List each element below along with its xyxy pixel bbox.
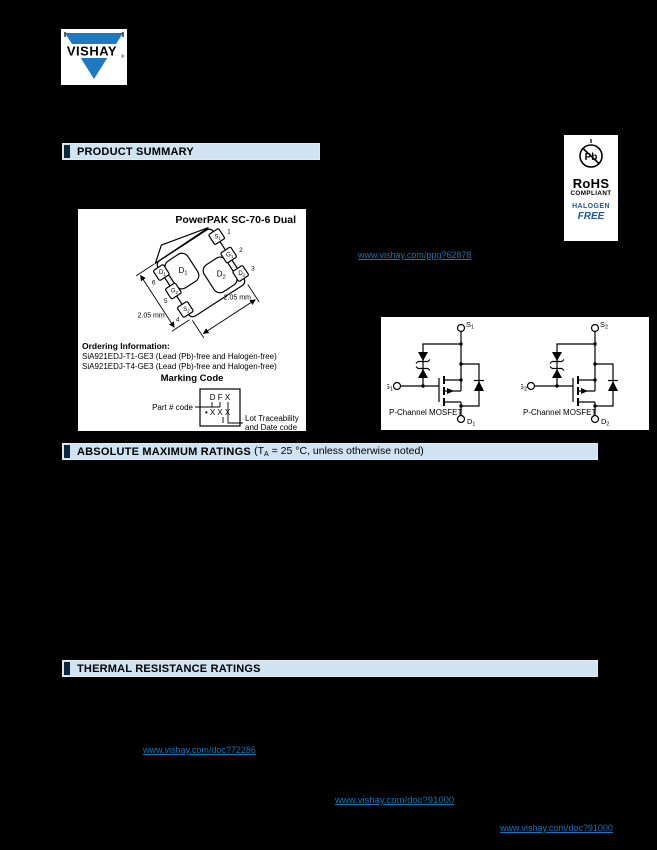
halogen-free-label: FREE [564,211,618,222]
vishay-logo: VISHAY ® [61,29,127,85]
soldering-guidelines-link[interactable]: www.vishay.com/doc?72286 [143,745,256,755]
circuit-caption: P-Channel MOSFET [523,408,596,417]
abs-max-condition: (TA = 25 °C, unless otherwise noted) [254,445,424,458]
date-code-label: and Date code [245,423,298,431]
package-diagram: D1 D2 S1 G1 D2 D1 G2 S2 1 2 3 6 5 4 2.05… [79,223,305,341]
absolute-max-ratings-header: ABSOLUTE MAXIMUM RATINGS (TA = 25 °C, un… [62,443,598,460]
pin-label-s2: S2 [183,307,190,313]
dimension-right: 2.05 mm [224,295,251,302]
halogen-label: HALOGEN [564,203,618,211]
circuit-symbols [552,342,618,407]
lot-traceability-label: Lot Traceability [245,414,299,423]
pin-number-5: 5 [164,298,168,305]
thermal-resistance-header: THERMAL RESISTANCE RATINGS [62,660,598,677]
package-figure: PowerPAK SC-70-6 Dual [77,208,307,432]
pin-label-d2: D2 [238,271,245,277]
ordering-information: Ordering Information: SiA921EDJ-T1-GE3 (… [82,341,277,373]
product-summary-header: PRODUCT SUMMARY [62,143,320,160]
terminal-label-s2: S2 [600,320,608,331]
pin-number-4: 4 [176,317,180,324]
schematic-figure: S1 G1 D1 P-Channel MOSFET [380,316,650,431]
part-code-label: Part # code [152,403,193,412]
pin-number-2: 2 [239,247,243,254]
terminal-label-s1: S1 [466,320,474,331]
marking-code-diagram: D F X •X X X Part # code Lot Traceabilit… [78,385,304,431]
pb-label: Pb [585,152,598,163]
datasheet-page: VISHAY ® PRODUCT SUMMARY Pb RoHS COMPLIA… [0,0,657,850]
pin-label-s1: S1 [215,234,222,240]
thermal-resistance-title: THERMAL RESISTANCE RATINGS [77,663,261,675]
marking-code-heading: Marking Code [78,373,306,384]
ordering-line: SiA921EDJ-T4-GE3 (Lead (Pb)-free and Hal… [82,362,277,373]
terminal-label-d2: D2 [601,417,609,428]
marking-row1: D F X [210,393,231,402]
circuit-symbols [418,342,484,407]
pb-free-icon: Pb [576,139,606,171]
terminal-label-d1: D1 [467,417,475,428]
pin-label-d1: D1 [159,270,166,276]
absolute-max-ratings-title: ABSOLUTE MAXIMUM RATINGS [77,446,254,458]
mosfet-circuit-1: S1 G1 D1 P-Channel MOSFET [387,318,515,430]
circuit-caption: P-Channel MOSFET [389,408,462,417]
product-summary-title: PRODUCT SUMMARY [77,146,194,158]
pin-number-3: 3 [251,265,255,272]
dimension-left: 2.05 mm [137,312,164,319]
vishay-logo-icon: VISHAY ® [61,29,127,85]
disclaimer-link-2[interactable]: www.vishay.com/doc?91000 [500,823,613,833]
terminal-label-g2: G2 [521,382,527,393]
rohs-compliant-label: COMPLIANT [564,190,618,198]
ordering-heading: Ordering Information: [82,341,277,352]
product-page-link[interactable]: www.vishay.com/ppg?62878 [358,250,471,260]
terminal-label-g1: G1 [387,382,393,393]
rohs-label: RoHS [564,177,618,190]
pin-number-1: 1 [227,228,231,235]
marking-row2: •X X X [205,408,231,417]
pin-label-g2: G2 [171,289,179,295]
disclaimer-link[interactable]: www.vishay.com/doc?91000 [335,795,454,806]
ordering-line: SiA921EDJ-T1-GE3 (Lead (Pb)-free and Hal… [82,352,277,363]
logo-brand-text: VISHAY [67,44,117,59]
pin-number-6: 6 [152,280,156,287]
pin-label-g1: G1 [226,253,234,259]
mosfet-circuit-2: S2 G2 D2 P-Channel MOSFET [521,318,649,430]
rohs-badge: Pb RoHS COMPLIANT HALOGEN FREE [564,135,618,241]
